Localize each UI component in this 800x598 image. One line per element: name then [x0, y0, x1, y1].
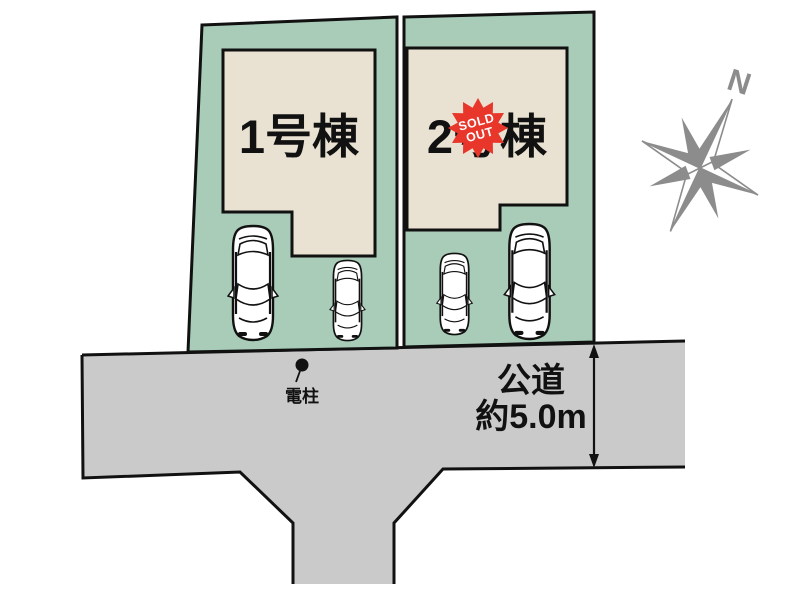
- road-name-label: 公道: [497, 362, 565, 400]
- car-icon: [504, 224, 554, 339]
- road-width-label: 約5.0m: [475, 398, 587, 436]
- utility-pole-label: 電柱: [285, 386, 319, 406]
- plot-layout-diagram: 1号棟 2号棟 SOLD OUT 電柱 公道 約5.0m: [0, 0, 800, 598]
- car-icon: [437, 253, 473, 334]
- utility-pole-dot: [296, 359, 309, 372]
- house-1-label: 1号棟: [239, 110, 360, 163]
- compass-north-label: N: [723, 62, 755, 102]
- compass: N: [612, 62, 790, 259]
- car-icon: [228, 226, 278, 340]
- lot-2: 2号棟: [404, 12, 594, 347]
- lot-1: 1号棟: [188, 17, 397, 352]
- compass-rose-icon: [612, 72, 790, 258]
- road-outline-right: [394, 467, 685, 584]
- car-icon: [330, 260, 365, 340]
